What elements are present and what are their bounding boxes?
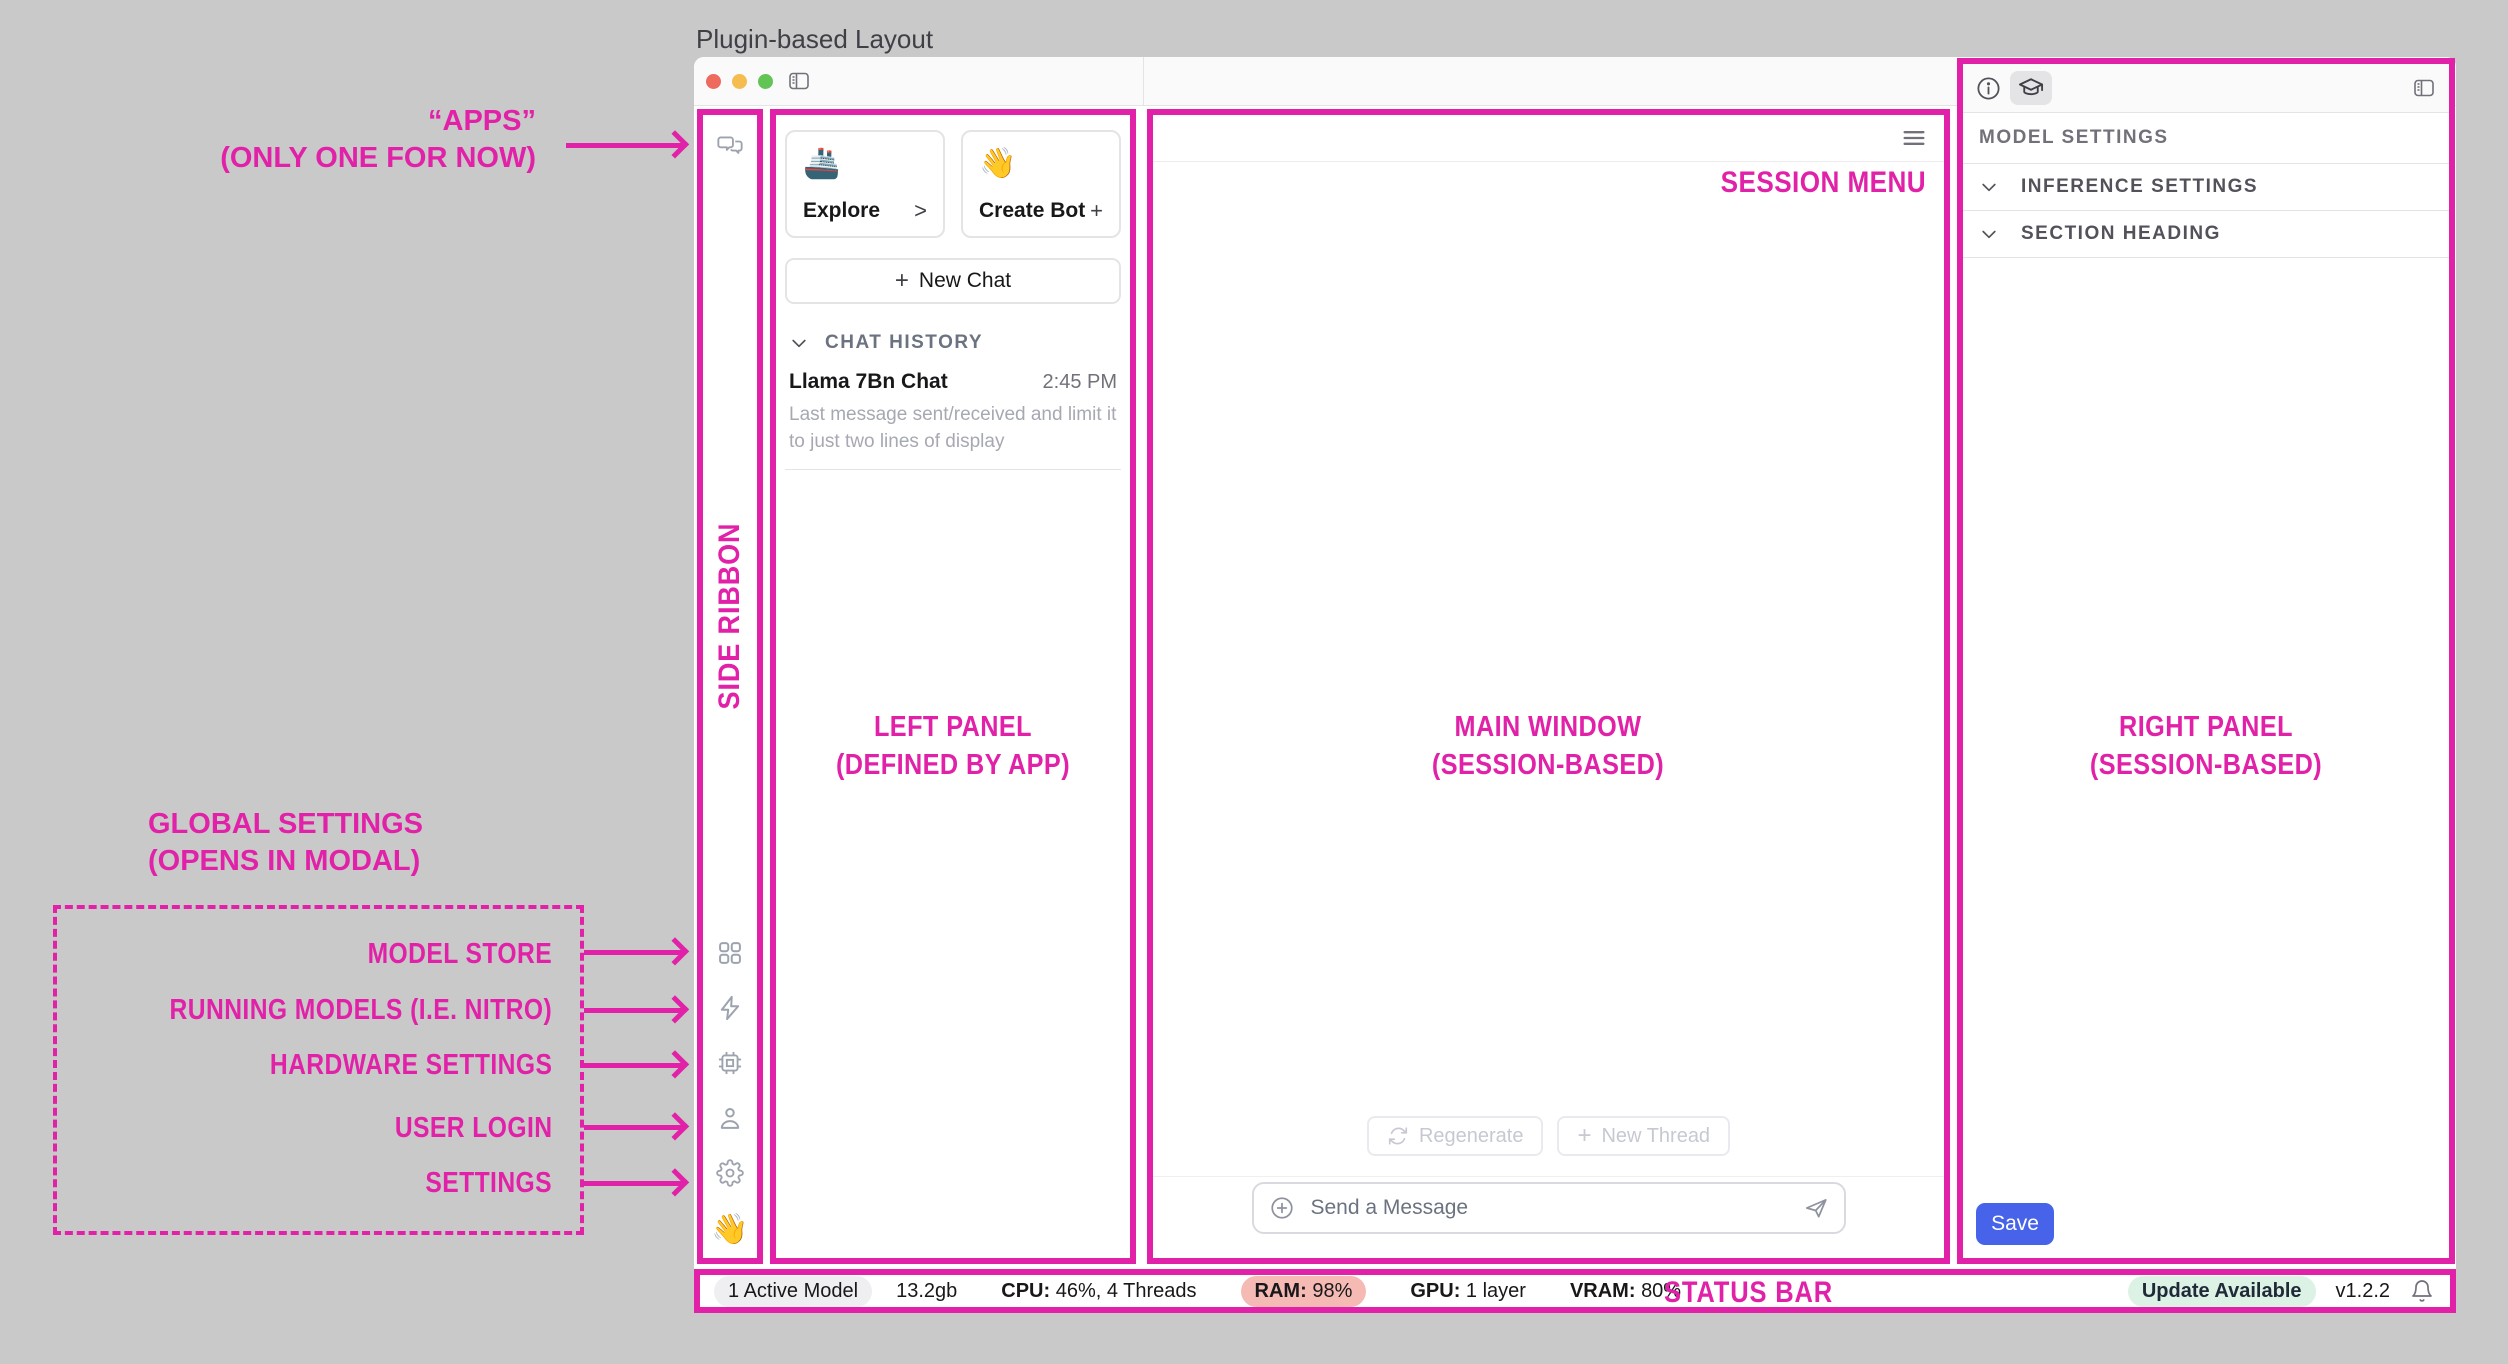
right-panel: MODEL SETTINGS INFERENCE SETTINGS SECTIO…: [1957, 58, 2455, 1264]
annotation-running-models: RUNNING MODELS (I.E. NITRO): [169, 993, 552, 1027]
model-settings-label: MODEL SETTINGS: [1979, 127, 2169, 149]
annotation-side-ribbon: SIDE RIBBON: [713, 523, 747, 710]
hardware-chip-icon[interactable]: [716, 1049, 744, 1077]
info-tab[interactable]: [1975, 75, 2002, 102]
message-input[interactable]: [1309, 1195, 1803, 1221]
new-thread-button[interactable]: + New Thread: [1557, 1116, 1730, 1156]
new-chat-button[interactable]: + New Chat: [785, 258, 1121, 304]
wave-emoji[interactable]: 👋: [711, 1214, 748, 1246]
annotation-arrow: [584, 1181, 682, 1186]
design-canvas: Plugin-based Layout: [0, 0, 2508, 1364]
annotation-arrow: [584, 1063, 682, 1068]
plus-circle-icon[interactable]: [1269, 1195, 1295, 1221]
gpu-stat: GPU: 1 layer: [1410, 1280, 1526, 1303]
ribbon-global-actions: 👋: [711, 939, 748, 1246]
regenerate-button[interactable]: Regenerate: [1367, 1116, 1544, 1156]
model-size: 13.2gb: [896, 1280, 957, 1303]
app-cards-row: 🚢 Explore > 👋 Create Bot +: [776, 115, 1130, 238]
explore-card[interactable]: 🚢 Explore >: [785, 130, 945, 238]
wave-emoji: 👋: [979, 144, 1103, 184]
save-button[interactable]: Save: [1976, 1203, 2054, 1245]
message-input-container: [1252, 1182, 1846, 1234]
inference-settings-section[interactable]: INFERENCE SETTINGS: [1963, 164, 2449, 211]
main-window-header: [1153, 115, 1944, 162]
new-thread-label: New Thread: [1601, 1125, 1710, 1148]
model-settings-row: MODEL SETTINGS: [1963, 113, 2449, 164]
plus-glyph: +: [895, 267, 909, 295]
section-heading-label: SECTION HEADING: [2021, 223, 2221, 245]
chevron-right-glyph: >: [914, 198, 927, 224]
session-menu-icon[interactable]: [1900, 124, 1928, 152]
zoom-button[interactable]: [758, 74, 773, 89]
ram-badge: RAM: 98%: [1241, 1276, 1367, 1307]
cpu-value: 46%, 4 Threads: [1056, 1280, 1197, 1302]
annotation-user-login: USER LOGIN: [394, 1111, 552, 1145]
chat-bubbles-icon[interactable]: [716, 131, 744, 159]
annotation-arrow: [584, 1125, 682, 1130]
vram-label: VRAM:: [1570, 1280, 1636, 1302]
minimize-button[interactable]: [732, 74, 747, 89]
titlebar-divider: [1143, 57, 1144, 105]
cpu-stat: CPU: 46%, 4 Threads: [1001, 1280, 1196, 1303]
chat-history-item[interactable]: Llama 7Bn Chat 2:45 PM Last message sent…: [785, 370, 1121, 470]
graduation-cap-icon: [2017, 74, 2045, 102]
plus-glyph: +: [1090, 198, 1103, 224]
gpu-value: 1 layer: [1466, 1280, 1526, 1302]
close-button[interactable]: [706, 74, 721, 89]
chat-title: Llama 7Bn Chat: [789, 370, 948, 394]
ram-value: 98%: [1312, 1280, 1352, 1302]
regenerate-label: Regenerate: [1419, 1125, 1524, 1148]
chat-timestamp: 2:45 PM: [1043, 371, 1117, 394]
active-model-badge: 1 Active Model: [714, 1276, 872, 1307]
annotation-arrow: [584, 1008, 682, 1013]
annotation-status-bar: STATUS BAR: [1664, 1276, 1833, 1310]
annotation-arrow: [584, 950, 682, 955]
cpu-label: CPU:: [1001, 1280, 1050, 1302]
panel-toggle-icon[interactable]: [2411, 76, 2437, 100]
update-available-badge[interactable]: Update Available: [2128, 1276, 2316, 1307]
plus-glyph: +: [1577, 1122, 1591, 1150]
annotation-hardware-settings: HARDWARE SETTINGS: [270, 1048, 552, 1082]
right-panel-header: [1963, 64, 2449, 113]
model-settings-tab[interactable]: [2010, 71, 2052, 105]
annotation-left-panel: LEFT PANEL (DEFINED BY APP): [836, 708, 1070, 784]
ram-label: RAM:: [1255, 1280, 1307, 1302]
annotation-right-panel: RIGHT PANEL (SESSION-BASED): [2090, 708, 2322, 784]
create-bot-card[interactable]: 👋 Create Bot +: [961, 130, 1121, 238]
figure-title: Plugin-based Layout: [696, 24, 933, 55]
model-store-grid-icon[interactable]: [716, 939, 744, 967]
composer-area: [1153, 1176, 1944, 1258]
running-models-lightning-icon[interactable]: [716, 994, 744, 1022]
status-bar: 1 Active Model 13.2gb CPU: 46%, 4 Thread…: [694, 1269, 2456, 1313]
annotation-session-menu: SESSION MENU: [1721, 166, 1926, 200]
thread-actions: Regenerate + New Thread: [1153, 1116, 1944, 1156]
sidebar-toggle-icon[interactable]: [786, 69, 812, 93]
new-chat-label: New Chat: [919, 269, 1011, 293]
gpu-label: GPU:: [1410, 1280, 1460, 1302]
annotation-model-store: MODEL STORE: [367, 937, 552, 971]
annotation-main-window: MAIN WINDOW (SESSION-BASED): [1432, 708, 1664, 784]
chat-canvas: [1153, 162, 1944, 1116]
section-heading-section[interactable]: SECTION HEADING: [1963, 211, 2449, 258]
explore-card-label: Explore: [803, 199, 880, 223]
refresh-icon: [1387, 1125, 1409, 1147]
send-icon[interactable]: [1803, 1195, 1829, 1221]
chevron-down-icon[interactable]: [1979, 177, 1999, 197]
chat-history-label: CHAT HISTORY: [825, 332, 983, 354]
chevron-down-icon[interactable]: [789, 333, 809, 353]
annotation-apps: “APPS” (ONLY ONE FOR NOW): [220, 103, 536, 177]
settings-gear-icon[interactable]: [716, 1159, 744, 1187]
info-icon: [1975, 75, 2002, 102]
chat-history-header[interactable]: CHAT HISTORY: [785, 332, 1121, 354]
user-login-icon[interactable]: [716, 1104, 744, 1132]
annotation-arrow: [566, 143, 682, 148]
create-bot-card-label: Create Bot: [979, 199, 1085, 223]
main-window: Regenerate + New Thread: [1147, 109, 1950, 1264]
bell-icon[interactable]: [2410, 1279, 2434, 1303]
ship-emoji: 🚢: [803, 144, 927, 184]
app-version: v1.2.2: [2336, 1280, 2390, 1303]
annotation-global-settings: GLOBAL SETTINGS (OPENS IN MODAL): [148, 806, 423, 880]
chevron-down-icon[interactable]: [1979, 224, 1999, 244]
left-panel: 🚢 Explore > 👋 Create Bot + + New Chat: [770, 109, 1136, 1264]
chat-preview: Last message sent/received and limit it …: [789, 401, 1117, 455]
inference-settings-label: INFERENCE SETTINGS: [2021, 176, 2258, 198]
annotation-settings: SETTINGS: [425, 1166, 552, 1200]
